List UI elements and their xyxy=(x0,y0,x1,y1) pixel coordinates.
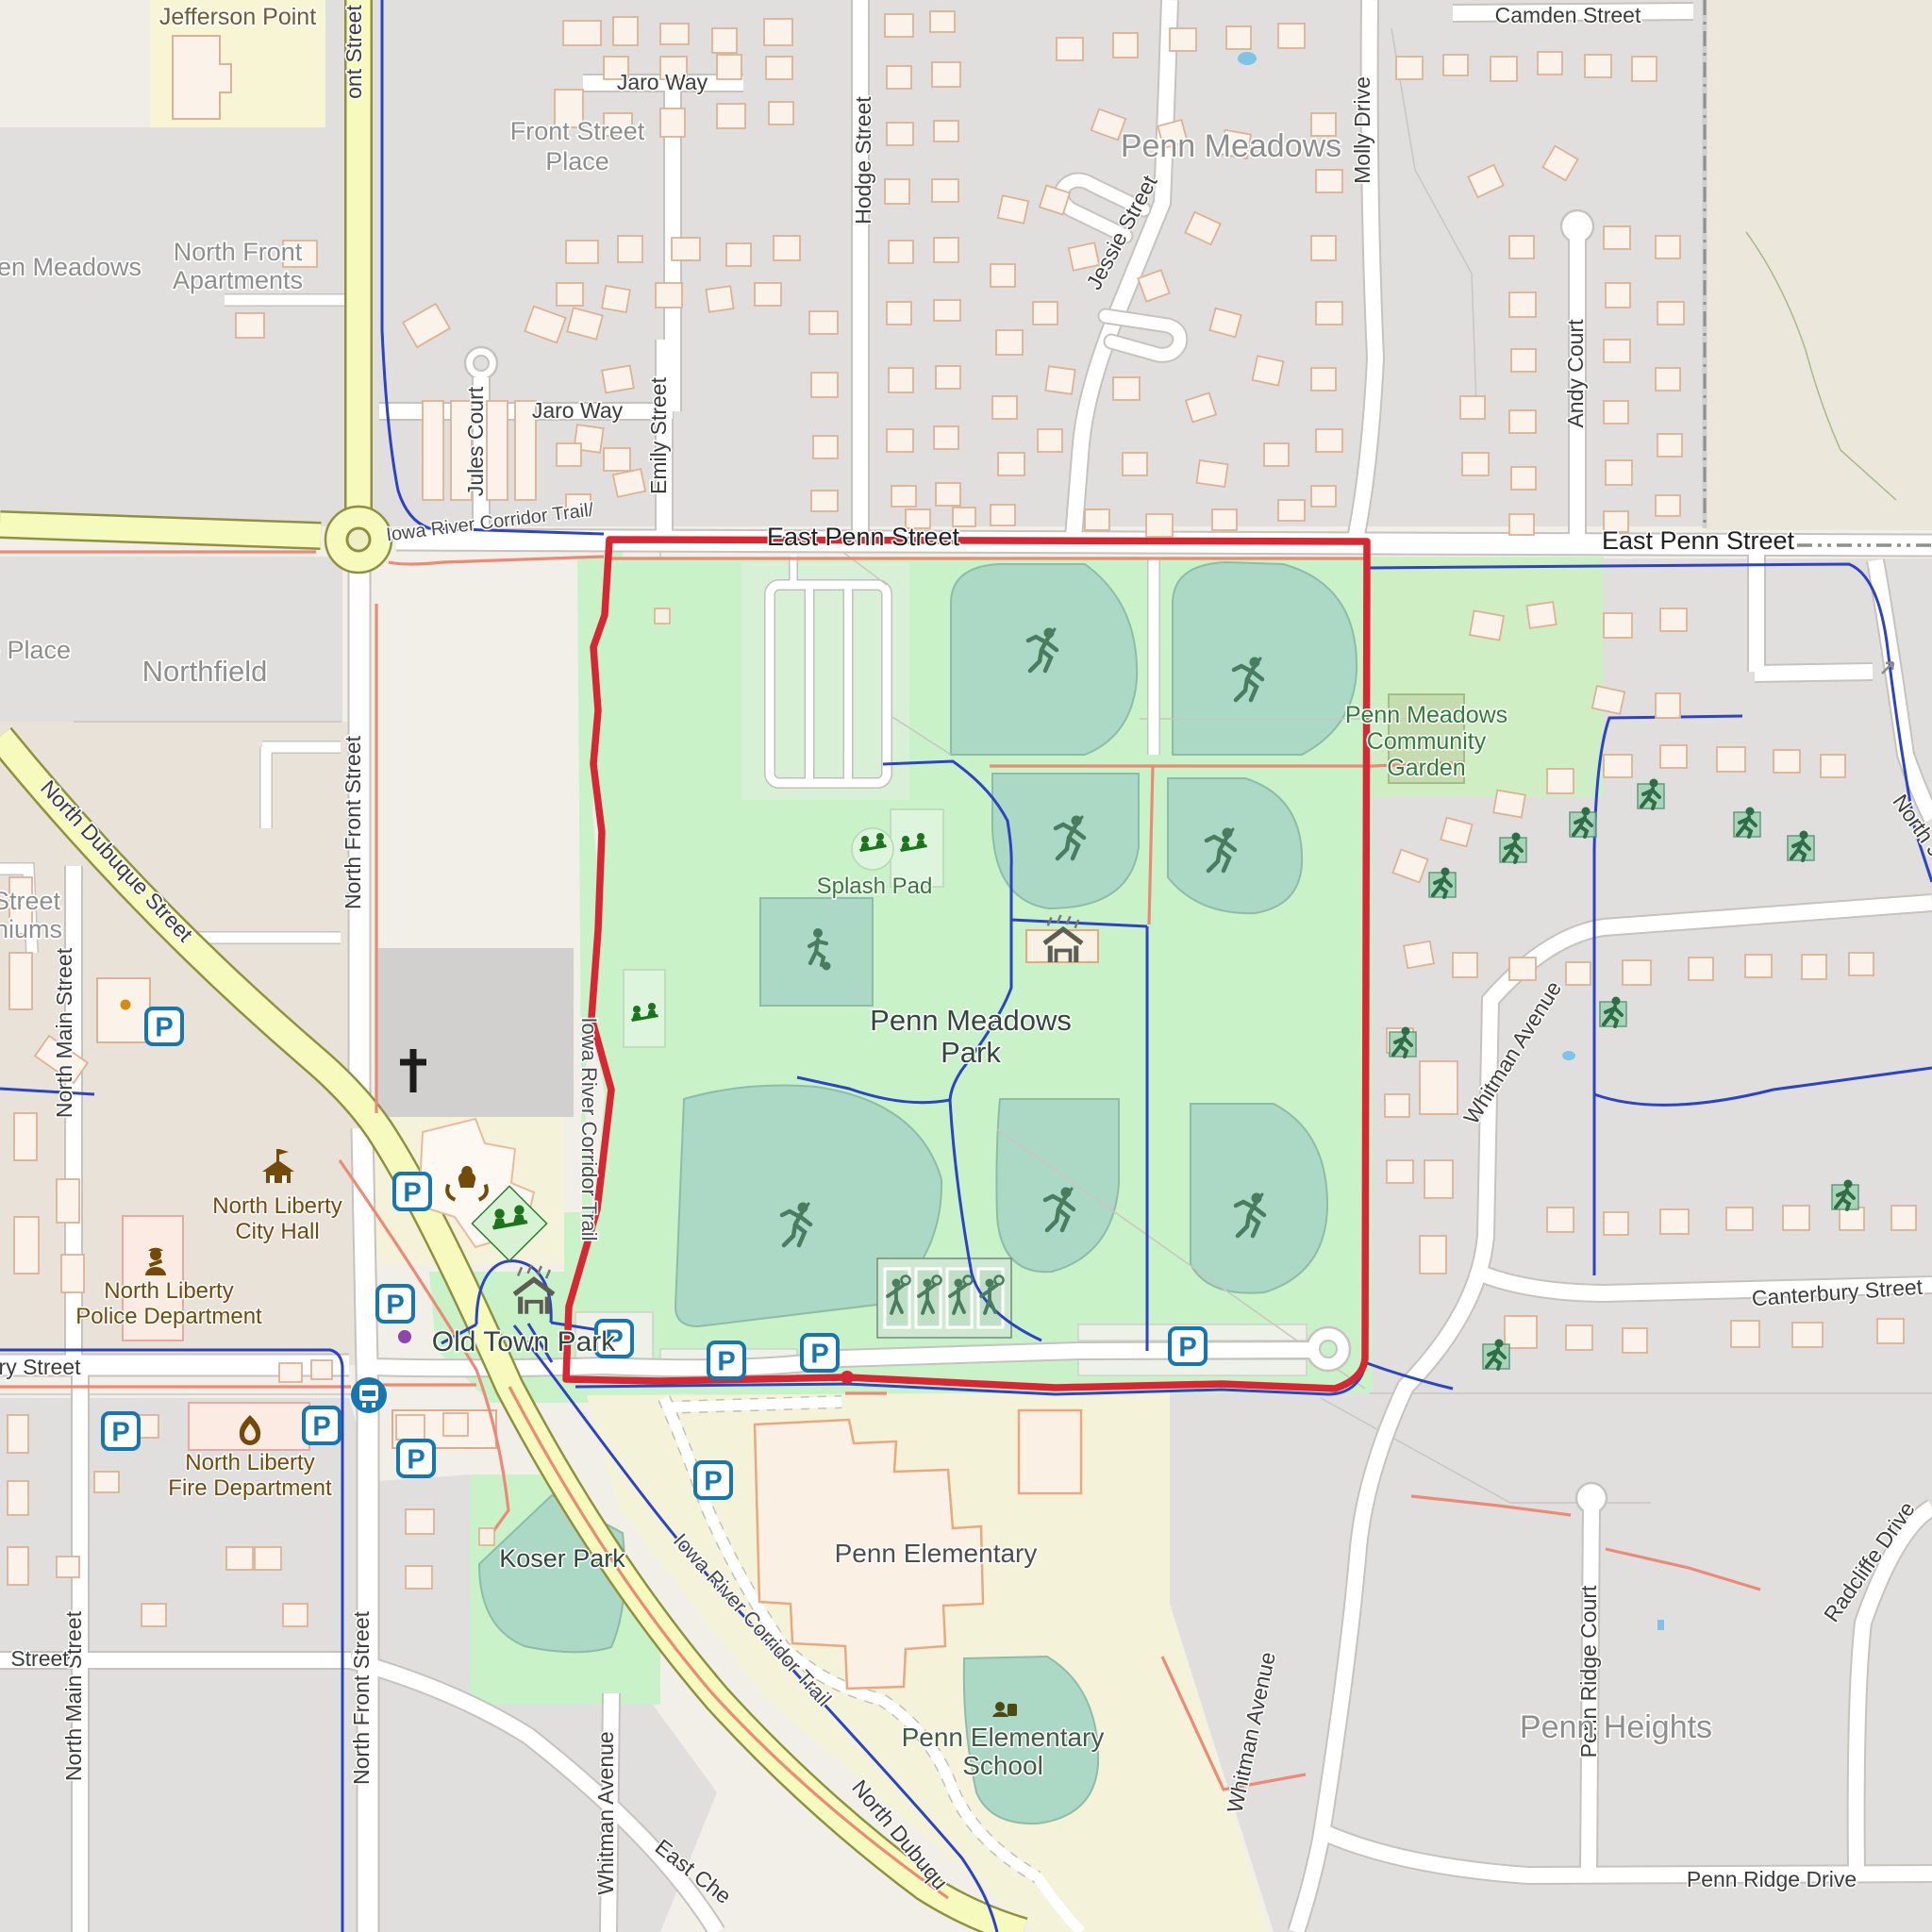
svg-text:Penn Ridge Drive: Penn Ridge Drive xyxy=(1687,1867,1857,1891)
svg-text:Jaro Way: Jaro Way xyxy=(532,398,624,423)
svg-text:Molly Drive: Molly Drive xyxy=(1350,76,1374,184)
svg-text:North Front: North Front xyxy=(174,238,303,266)
svg-text:City Hall: City Hall xyxy=(235,1219,319,1244)
svg-text:Old Town Park: Old Town Park xyxy=(432,1326,617,1357)
svg-text:Iowa River Corridor Trail: Iowa River Corridor Trail xyxy=(577,1017,601,1241)
svg-text:Penn Heights: Penn Heights xyxy=(1520,1709,1712,1745)
svg-text:Garden: Garden xyxy=(1387,755,1465,781)
svg-text:Jules Court: Jules Court xyxy=(463,386,488,496)
svg-text:Penn Elementary: Penn Elementary xyxy=(835,1539,1038,1568)
svg-text:Jaro Way: Jaro Way xyxy=(617,70,708,94)
svg-text:e Place: e Place xyxy=(0,636,71,664)
svg-text:Street: Street xyxy=(10,1646,69,1671)
svg-text:North Main Street: North Main Street xyxy=(52,947,76,1118)
svg-text:North Main Street: North Main Street xyxy=(61,1610,86,1781)
svg-text:School: School xyxy=(962,1751,1043,1780)
svg-text:ont Street: ont Street xyxy=(341,5,366,99)
svg-text:Community: Community xyxy=(1367,728,1487,755)
svg-text:Fire Department: Fire Department xyxy=(168,1475,332,1501)
svg-text:Emily Street: Emily Street xyxy=(646,376,671,494)
svg-text:East Penn Street: East Penn Street xyxy=(1602,526,1795,555)
svg-text:Penn Meadows: Penn Meadows xyxy=(870,1004,1072,1037)
svg-text:North Front Street: North Front Street xyxy=(341,735,365,909)
svg-text:North Liberty: North Liberty xyxy=(212,1193,341,1219)
svg-text:Andy Court: Andy Court xyxy=(1563,319,1588,428)
svg-text:Place: Place xyxy=(545,147,609,175)
svg-text:Penn Meadows: Penn Meadows xyxy=(1121,128,1341,164)
svg-text:Apartments: Apartments xyxy=(173,266,303,294)
svg-text:Jefferson Point: Jefferson Point xyxy=(159,4,316,30)
svg-text:North Liberty: North Liberty xyxy=(104,1278,233,1304)
svg-text:ry Street: ry Street xyxy=(0,1355,81,1379)
svg-text:Northfield: Northfield xyxy=(142,655,268,688)
svg-text:Splash Pad: Splash Pad xyxy=(817,874,933,899)
svg-text:den Meadows: den Meadows xyxy=(0,253,142,281)
svg-text:Front Street: Front Street xyxy=(510,117,645,145)
svg-text:East Penn Street: East Penn Street xyxy=(767,523,960,551)
svg-text:Camden Street: Camden Street xyxy=(1495,3,1641,27)
svg-text:Park: Park xyxy=(941,1036,1001,1069)
svg-text:North Front Street: North Front Street xyxy=(349,1610,374,1785)
svg-text:North Liberty: North Liberty xyxy=(185,1450,314,1475)
svg-text:Police Department: Police Department xyxy=(75,1304,262,1329)
svg-text:Hodge Street: Hodge Street xyxy=(851,96,875,225)
svg-text:Koser Park: Koser Park xyxy=(499,1544,625,1573)
svg-text:Whitman Avenue: Whitman Avenue xyxy=(593,1731,618,1894)
svg-text:niums: niums xyxy=(0,915,62,943)
svg-text:Penn Elementary: Penn Elementary xyxy=(902,1723,1105,1752)
svg-text:Street: Street xyxy=(0,887,61,915)
svg-text:Penn Meadows: Penn Meadows xyxy=(1345,702,1507,728)
